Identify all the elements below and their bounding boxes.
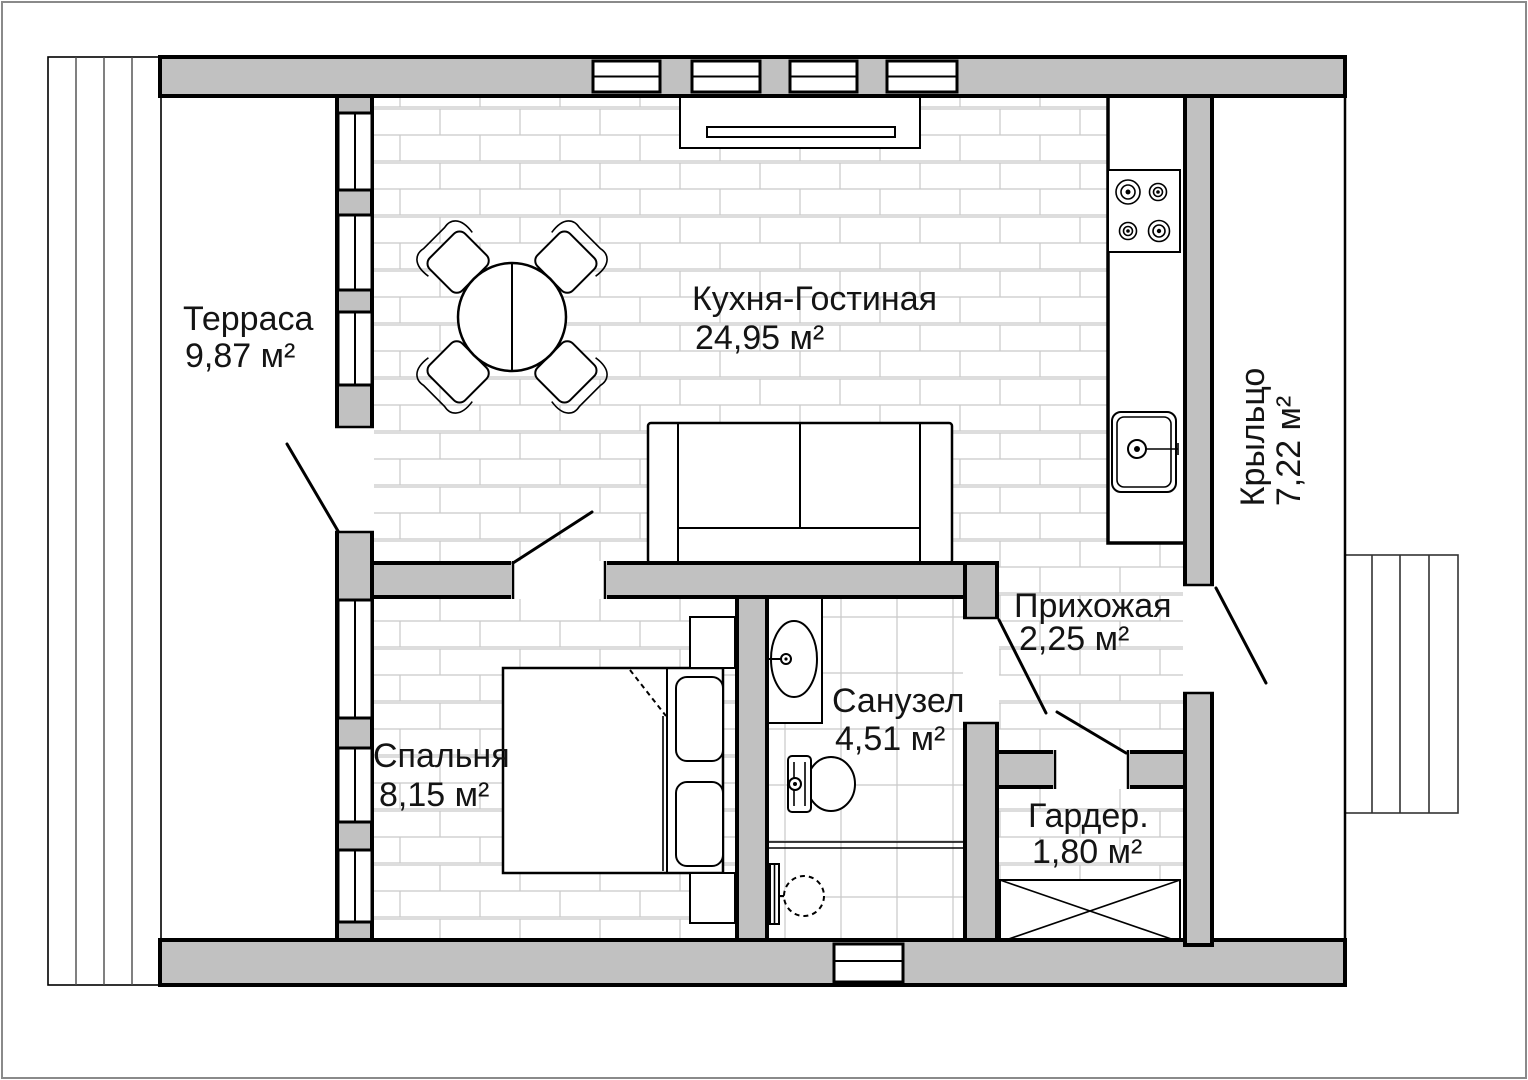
room-label-terrace: Терраса — [183, 300, 313, 338]
room-area-porch: 7,22 м² — [1270, 396, 1308, 506]
room-label-kitchen-living: Кухня-Гостиная — [692, 280, 937, 318]
window — [834, 944, 903, 982]
dining-table-icon — [458, 263, 566, 371]
room-area-terrace: 9,87 м² — [185, 337, 295, 375]
steps-icon — [1345, 555, 1458, 813]
kitchen-sink-icon — [1112, 412, 1178, 492]
pillow-icon — [676, 782, 723, 866]
pillow-icon — [676, 677, 723, 761]
kitchen-counter-icon — [1108, 96, 1185, 543]
toilet-icon — [788, 756, 855, 812]
wall-living-bedroom — [372, 563, 996, 597]
window — [338, 215, 372, 290]
room-label-porch: Крыльцо — [1234, 368, 1272, 507]
room-area-hallway: 2,25 м² — [1019, 620, 1129, 658]
window — [692, 61, 760, 92]
wardrobe-closet-icon — [1000, 880, 1180, 942]
window — [338, 600, 372, 718]
nightstand-icon — [690, 617, 735, 668]
window — [887, 61, 957, 92]
sofa-icon — [648, 423, 952, 563]
floor-plan-page: Терраса 9,87 м² Кухня-Гостиная 24,95 м² … — [0, 0, 1528, 1080]
room-area-wardrobe: 1,80 м² — [1032, 833, 1142, 871]
wall-house-porch — [1185, 96, 1212, 945]
nightstand-icon — [690, 873, 735, 923]
window — [338, 850, 372, 922]
room-label-bathroom: Санузел — [832, 682, 964, 720]
window — [790, 61, 857, 92]
window — [593, 61, 660, 92]
wall-bedroom-bathroom — [737, 597, 767, 940]
porch-floor — [1212, 96, 1345, 945]
room-area-bathroom: 4,51 м² — [835, 720, 945, 758]
window — [338, 113, 372, 190]
room-area-kitchen-living: 24,95 м² — [695, 319, 824, 357]
room-label-wardrobe: Гардер. — [1028, 797, 1149, 835]
terrace-decking — [48, 57, 161, 985]
stove-icon — [1108, 170, 1180, 252]
window — [338, 312, 372, 385]
floor-plan-drawing: Терраса 9,87 м² Кухня-Гостиная 24,95 м² … — [0, 0, 1528, 1080]
bathroom-sink-icon — [767, 597, 822, 723]
terrace-door — [287, 427, 374, 532]
room-label-bedroom: Спальня — [373, 737, 510, 775]
window — [338, 748, 372, 822]
console-table-icon — [680, 97, 920, 148]
room-area-bedroom: 8,15 м² — [379, 776, 489, 814]
outer-wall-bottom — [160, 940, 1345, 985]
